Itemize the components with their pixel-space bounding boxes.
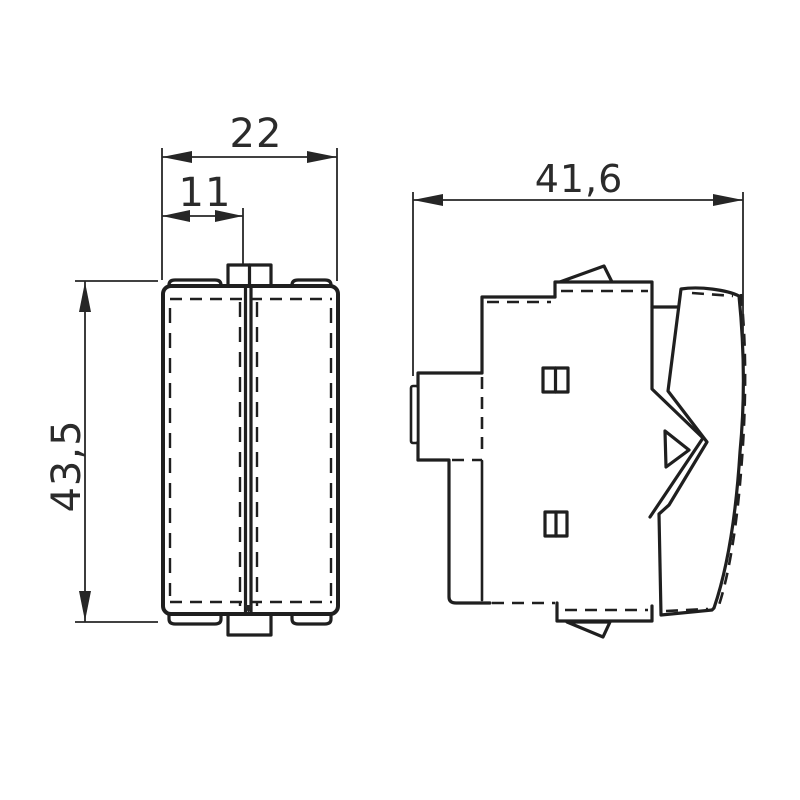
- side-body-lower-left: [418, 460, 490, 603]
- technical-drawing-page: 22 11 41,6 43,5: [0, 0, 800, 800]
- dimension-label-41-6: 41,6: [535, 157, 624, 201]
- dimension-label-43-5: 43,5: [44, 419, 90, 512]
- switch-module-drawing: 22 11 41,6 43,5: [0, 0, 800, 800]
- front-bottom-lug: [228, 614, 271, 635]
- arrowhead-right: [713, 194, 743, 206]
- side-bottom-lug-flag: [567, 622, 610, 637]
- side-claw-tab: [411, 386, 418, 443]
- side-rocker-outline: [659, 288, 743, 615]
- side-bottom-cap: [557, 603, 652, 621]
- arrowhead-left: [162, 151, 192, 163]
- arrowhead-right: [307, 151, 337, 163]
- arrowhead-left: [413, 194, 443, 206]
- arrowhead-top: [79, 282, 91, 312]
- side-clip-upper: [543, 368, 568, 392]
- dimension-overall-height: 43,5: [44, 281, 158, 622]
- dimension-front-half-width: 11: [162, 170, 243, 264]
- side-clip-lower: [545, 512, 567, 536]
- side-view: [411, 266, 745, 637]
- arrowhead-bottom: [79, 591, 91, 621]
- dimension-label-22: 22: [230, 111, 283, 157]
- side-body-upper-left: [418, 297, 555, 460]
- side-top-cap: [555, 282, 678, 307]
- front-view: [163, 265, 338, 635]
- dimension-label-11: 11: [179, 170, 232, 216]
